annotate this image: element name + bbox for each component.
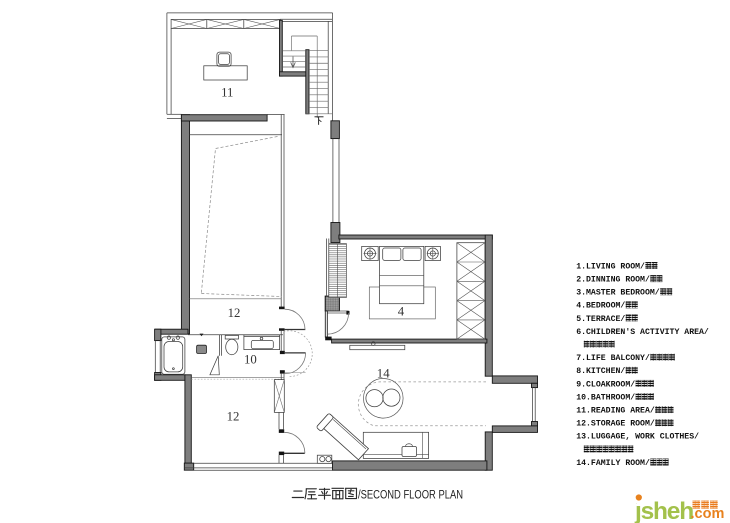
svg-text:12: 12 bbox=[227, 409, 240, 423]
svg-text:4.BEDROOM/: 4.BEDROOM/ bbox=[576, 301, 625, 311]
svg-text:7.LIFE BALCONY/: 7.LIFE BALCONY/ bbox=[576, 353, 650, 363]
svg-text:12.STORAGE ROOM/: 12.STORAGE ROOM/ bbox=[576, 419, 655, 429]
svg-text:6.CHILDREN'S ACTIVITY AREA/: 6.CHILDREN'S ACTIVITY AREA/ bbox=[576, 327, 709, 337]
svg-text:14.FAMILY ROOM/: 14.FAMILY ROOM/ bbox=[576, 458, 650, 468]
svg-text:9.CLOAKROOM/: 9.CLOAKROOM/ bbox=[576, 379, 635, 389]
svg-text:12: 12 bbox=[228, 306, 241, 320]
svg-text:11: 11 bbox=[221, 85, 233, 99]
svg-text:8.KITCHEN/: 8.KITCHEN/ bbox=[576, 366, 625, 376]
svg-text:11.READING AREA/: 11.READING AREA/ bbox=[576, 406, 655, 416]
svg-text:/SECOND FLOOR PLAN: /SECOND FLOOR PLAN bbox=[358, 488, 463, 502]
svg-text:jsheh: jsheh bbox=[634, 498, 693, 523]
svg-text:3.MASTER BEDROOM/: 3.MASTER BEDROOM/ bbox=[576, 288, 660, 298]
svg-text:2.DINNING ROOM/: 2.DINNING ROOM/ bbox=[576, 275, 650, 285]
svg-text:13.LUGGAGE, WORK CLOTHES/: 13.LUGGAGE, WORK CLOTHES/ bbox=[576, 432, 699, 442]
svg-text:.com: .com bbox=[691, 506, 725, 522]
svg-text:10.BATHROOM/: 10.BATHROOM/ bbox=[576, 392, 635, 402]
svg-text:4: 4 bbox=[398, 304, 405, 318]
svg-text:10: 10 bbox=[244, 353, 257, 367]
svg-text:5.TERRACE/: 5.TERRACE/ bbox=[576, 314, 625, 324]
svg-text:1.LIVING ROOM/: 1.LIVING ROOM/ bbox=[576, 261, 645, 271]
